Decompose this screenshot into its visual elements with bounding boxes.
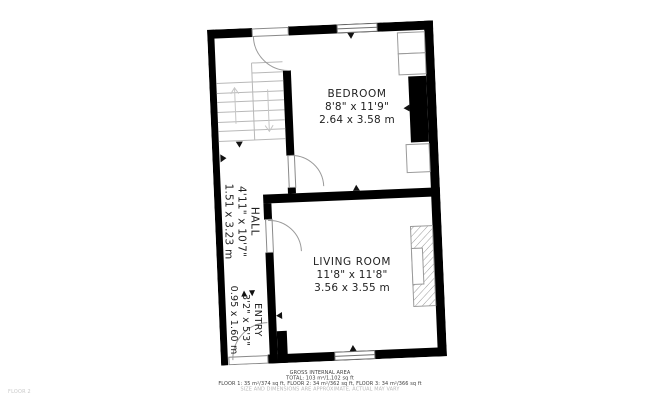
floorplan-page: BEDROOM 8'8" x 11'9" 2.64 x 3.58 m LIVIN… xyxy=(0,0,650,406)
floor-tag: FLOOR 2 xyxy=(8,389,31,395)
bedroom-closet-top xyxy=(397,32,425,54)
hall-label: HALL 4'11" x 10'7" 1.51 x 3.23 m xyxy=(222,167,261,277)
bedroom-cabinet xyxy=(406,144,430,173)
hall-dim-metric: 1.51 x 3.23 m xyxy=(222,167,235,277)
bedroom-closet-bottom xyxy=(398,53,426,75)
hall-name: HALL xyxy=(248,167,261,277)
hall-dim-imperial: 4'11" x 10'7" xyxy=(235,167,248,277)
bedroom-dim-metric: 2.64 x 3.58 m xyxy=(297,114,417,127)
bedroom-label: BEDROOM 8'8" x 11'9" 2.64 x 3.58 m xyxy=(297,88,417,127)
living-room-label: LIVING ROOM 11'8" x 11'8" 3.56 x 3.55 m xyxy=(292,256,412,295)
living-room-name: LIVING ROOM xyxy=(292,256,412,269)
living-room-dim-metric: 3.56 x 3.55 m xyxy=(292,282,412,295)
bedroom-door-leaf xyxy=(288,155,296,187)
living-room-dim-imperial: 11'8" x 11'8" xyxy=(292,269,412,282)
fireplace xyxy=(410,226,435,307)
bedroom-name: BEDROOM xyxy=(297,88,417,101)
landing-door-arc xyxy=(253,35,289,71)
area-caption: GROSS INTERNAL AREA TOTAL: 103 m²/1,102 … xyxy=(144,370,496,392)
landing-door-leaf xyxy=(252,27,288,36)
staircase xyxy=(216,62,286,142)
living-room-door-leaf xyxy=(266,219,274,252)
caption-disclaimer: SIZE AND DIMENSIONS ARE APPROXIMATE, ACT… xyxy=(144,387,496,393)
entry-name: ENTRY xyxy=(251,280,263,360)
entry-label: ENTRY 3'2" x 5'3" 0.95 x 1.60 m xyxy=(227,280,263,360)
stair-direction-arrows xyxy=(231,86,274,133)
bedroom-dim-imperial: 8'8" x 11'9" xyxy=(297,101,417,114)
entry-dim-imperial: 3'2" x 5'3" xyxy=(239,280,251,360)
entry-dim-metric: 0.95 x 1.60 m xyxy=(227,280,239,360)
living-room-window xyxy=(335,351,375,361)
bedroom-window xyxy=(337,23,377,33)
